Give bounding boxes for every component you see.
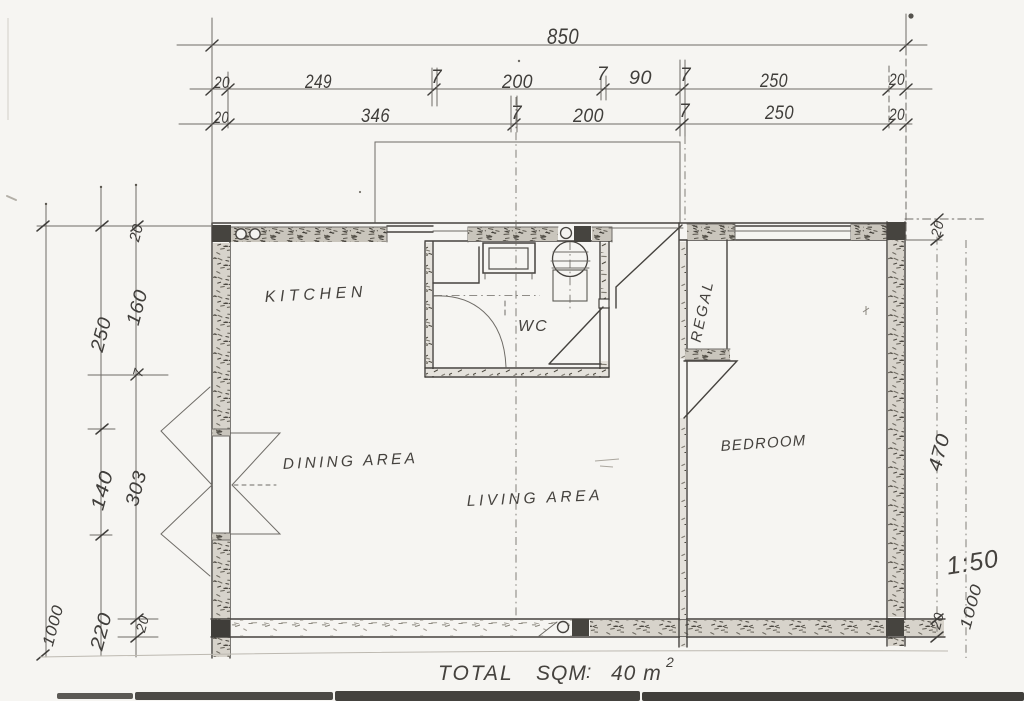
svg-text:20: 20 [888, 105, 905, 124]
svg-text:7: 7 [680, 65, 692, 86]
svg-text:2: 2 [665, 654, 674, 670]
svg-text:7: 7 [597, 64, 609, 85]
svg-text:250: 250 [759, 71, 788, 92]
svg-text:850: 850 [547, 24, 579, 49]
svg-text:7: 7 [431, 67, 443, 88]
svg-text:250: 250 [764, 103, 794, 124]
svg-text:40 m: 40 m [611, 662, 662, 685]
svg-text:20: 20 [213, 73, 230, 92]
svg-text:249: 249 [304, 72, 332, 93]
svg-text:7: 7 [511, 103, 523, 124]
svg-text:200: 200 [501, 72, 533, 93]
svg-text:20: 20 [888, 70, 905, 89]
svg-text:7: 7 [679, 101, 691, 122]
svg-text:200: 200 [572, 106, 604, 127]
svg-text::: : [586, 662, 591, 683]
svg-text:SQM: SQM [536, 662, 587, 685]
svg-text:20: 20 [213, 108, 229, 127]
svg-text:WC: WC [518, 318, 549, 335]
svg-text:TOTAL: TOTAL [438, 662, 514, 685]
svg-text:90: 90 [629, 68, 652, 89]
svg-text:346: 346 [361, 106, 390, 127]
